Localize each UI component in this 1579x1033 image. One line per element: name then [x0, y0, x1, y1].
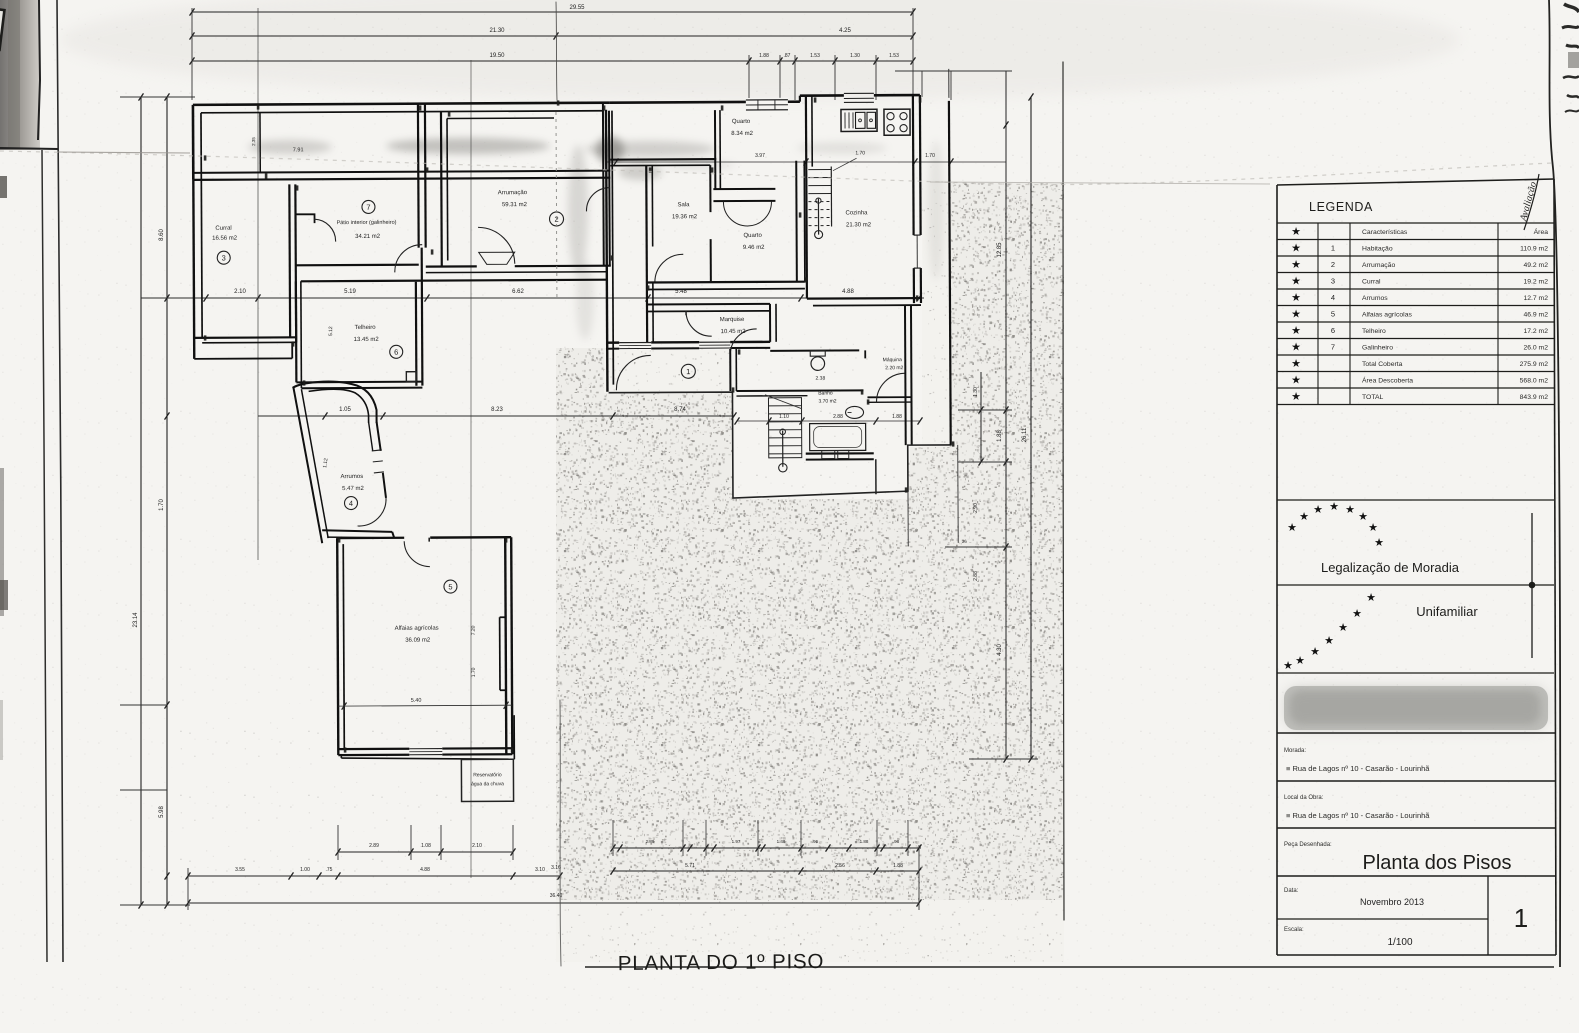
svg-text:Reservatório: Reservatório — [473, 772, 502, 778]
svg-text:≡ Rua de Lagos nº 10 - Cas: ≡ Rua de Lagos nº 10 - Casarão - Lourinh… — [1286, 811, 1430, 820]
svg-text:Área Descoberta: Área Descoberta — [1362, 375, 1413, 384]
svg-text:21.30 m2: 21.30 m2 — [846, 222, 872, 228]
svg-text:★: ★ — [1287, 522, 1297, 534]
svg-text:275.9 m2: 275.9 m2 — [1520, 361, 1549, 368]
svg-text:1.30: 1.30 — [850, 53, 860, 59]
svg-text:7: 7 — [1331, 342, 1335, 351]
svg-text:568.0 m2: 568.0 m2 — [1520, 377, 1549, 384]
svg-text:Telheiro: Telheiro — [355, 325, 377, 331]
svg-text:1: 1 — [686, 367, 690, 376]
svg-text:49.2 m2: 49.2 m2 — [1523, 262, 1548, 269]
svg-text:21.30: 21.30 — [489, 28, 505, 34]
svg-text:PLANTA DO 1º PISO: PLANTA DO 1º PISO — [618, 950, 825, 975]
svg-text:17.2 m2: 17.2 m2 — [1523, 328, 1548, 335]
svg-text:1.70: 1.70 — [471, 667, 477, 677]
svg-text:3: 3 — [1331, 276, 1335, 285]
svg-text:água da chuva: água da chuva — [471, 781, 504, 787]
svg-text:Curral: Curral — [1362, 278, 1381, 285]
svg-text:4.25: 4.25 — [839, 28, 851, 34]
svg-text:1: 1 — [1331, 243, 1335, 252]
svg-text:5.47 m2: 5.47 m2 — [342, 486, 364, 492]
svg-text:1.53: 1.53 — [889, 53, 899, 59]
svg-text:4: 4 — [1331, 293, 1335, 302]
svg-text:3: 3 — [222, 253, 226, 262]
svg-text:2.88: 2.88 — [833, 414, 843, 420]
svg-text:7.91: 7.91 — [293, 147, 304, 153]
svg-text:843.9 m2: 843.9 m2 — [1520, 394, 1549, 401]
svg-text:1.88: 1.88 — [892, 414, 902, 420]
svg-text:1.10: 1.10 — [779, 414, 789, 420]
svg-text:2.10: 2.10 — [472, 843, 482, 849]
svg-text:7: 7 — [366, 203, 370, 212]
svg-text:1.97: 1.97 — [732, 839, 741, 844]
svg-text:LEGENDA: LEGENDA — [1309, 200, 1373, 214]
svg-text:3.70 m2: 3.70 m2 — [818, 398, 836, 404]
svg-text:19.50: 19.50 — [489, 53, 505, 59]
svg-text:1.00: 1.00 — [300, 867, 310, 873]
svg-text:★: ★ — [1366, 592, 1376, 604]
svg-text:Sala: Sala — [677, 202, 690, 208]
svg-text:TOTAL: TOTAL — [1362, 394, 1383, 401]
svg-text:★: ★ — [1291, 242, 1301, 254]
svg-text:★: ★ — [1283, 660, 1293, 672]
svg-text:26.0 m2: 26.0 m2 — [1523, 344, 1548, 351]
svg-text:★: ★ — [1368, 522, 1378, 534]
svg-text:Arrumação: Arrumação — [498, 190, 528, 196]
svg-text:2.90: 2.90 — [973, 503, 979, 513]
svg-text:1.70: 1.70 — [925, 153, 935, 159]
svg-text:3.10: 3.10 — [535, 867, 545, 873]
svg-text:Banho: Banho — [818, 391, 833, 397]
svg-text:★: ★ — [1291, 358, 1301, 370]
svg-text:2.88: 2.88 — [973, 571, 979, 581]
svg-text:Telheiro: Telheiro — [1362, 328, 1386, 335]
svg-text:★: ★ — [1291, 341, 1301, 353]
svg-text:.98: .98 — [893, 839, 900, 844]
svg-text:5: 5 — [448, 582, 452, 591]
svg-text:16.56 m2: 16.56 m2 — [212, 236, 238, 242]
svg-text:36.09 m2: 36.09 m2 — [405, 638, 431, 644]
svg-text:6: 6 — [394, 348, 398, 357]
svg-text:59.31 m2: 59.31 m2 — [502, 202, 528, 208]
svg-text:6: 6 — [1331, 326, 1335, 335]
svg-text:Legalização de Moradia: Legalização de Moradia — [1321, 560, 1460, 575]
svg-text:1.48: 1.48 — [777, 839, 786, 844]
svg-text:Quarto: Quarto — [743, 233, 762, 239]
svg-text:36: 36 — [962, 539, 968, 544]
svg-text:34.21 m2: 34.21 m2 — [355, 234, 381, 240]
svg-text:1.30: 1.30 — [973, 387, 979, 397]
svg-text:★: ★ — [1338, 622, 1348, 634]
svg-text:★: ★ — [1299, 511, 1309, 523]
svg-text:★: ★ — [1345, 504, 1355, 516]
svg-text:1.70: 1.70 — [855, 150, 865, 156]
svg-text:4.30: 4.30 — [997, 644, 1003, 656]
svg-text:★: ★ — [1291, 259, 1301, 271]
svg-text:2.89: 2.89 — [369, 843, 379, 849]
svg-text:Unifamiliar: Unifamiliar — [1416, 604, 1478, 619]
svg-text:2.10: 2.10 — [234, 289, 246, 295]
svg-text:Escala:: Escala: — [1284, 927, 1304, 933]
svg-text:Área: Área — [1534, 227, 1549, 236]
svg-text:★: ★ — [1313, 504, 1323, 516]
svg-text:Alfaias agrícolas: Alfaias agrícolas — [1362, 311, 1412, 318]
svg-text:★: ★ — [1358, 511, 1368, 523]
svg-text:2: 2 — [1331, 260, 1335, 269]
svg-text:4.88: 4.88 — [842, 289, 854, 295]
svg-text:1.88: 1.88 — [759, 53, 769, 59]
svg-text:5.71: 5.71 — [685, 863, 695, 869]
svg-text:★: ★ — [1291, 374, 1301, 386]
svg-text:7.20: 7.20 — [471, 625, 477, 635]
svg-text:2.20 m2: 2.20 m2 — [885, 365, 903, 371]
svg-text:19.36 m2: 19.36 m2 — [672, 214, 698, 220]
svg-text:Habitação: Habitação — [1362, 245, 1393, 252]
svg-text:2.35: 2.35 — [251, 137, 256, 146]
svg-text:1: 1 — [1514, 903, 1528, 933]
svg-text:13.45 m2: 13.45 m2 — [354, 337, 380, 343]
svg-text:★: ★ — [1291, 308, 1301, 320]
svg-text:≡ Rua de Lagos nº 10 - Cas: ≡ Rua de Lagos nº 10 - Casarão - Lourinh… — [1286, 764, 1430, 773]
svg-text:46.9 m2: 46.9 m2 — [1523, 311, 1548, 318]
svg-text:Galinheiro: Galinheiro — [1362, 344, 1393, 351]
svg-text:2.56: 2.56 — [835, 863, 845, 869]
svg-text:1.08: 1.08 — [421, 843, 431, 849]
svg-text:★: ★ — [1291, 391, 1301, 403]
svg-text:3.97: 3.97 — [755, 153, 765, 159]
svg-text:Morada:: Morada: — [1284, 748, 1306, 754]
svg-text:★: ★ — [1329, 501, 1339, 513]
svg-text:★: ★ — [1291, 226, 1301, 238]
svg-text:Novembro 2013: Novembro 2013 — [1360, 897, 1424, 907]
svg-text:1/100: 1/100 — [1387, 937, 1412, 948]
svg-text:Planta dos Pisos: Planta dos Pisos — [1363, 852, 1512, 874]
svg-text:4.88: 4.88 — [420, 867, 430, 873]
svg-text:Pátio interior (galinheiro): Pátio interior (galinheiro) — [337, 220, 397, 226]
svg-text:Arrumos: Arrumos — [1362, 295, 1388, 302]
svg-text:5.19: 5.19 — [344, 289, 356, 295]
svg-text:110.9 m2: 110.9 m2 — [1520, 245, 1548, 252]
svg-text:.87: .87 — [784, 53, 791, 59]
svg-text:8.23: 8.23 — [491, 407, 503, 413]
svg-text:★: ★ — [1291, 292, 1301, 304]
svg-text:29.55: 29.55 — [569, 5, 585, 11]
svg-text:2.38: 2.38 — [815, 376, 825, 382]
svg-text:1.05: 1.05 — [339, 407, 351, 413]
svg-text:Peça Desenhada:: Peça Desenhada: — [1284, 842, 1332, 848]
svg-text:26.11: 26.11 — [1022, 427, 1028, 442]
svg-text:10.45 m2: 10.45 m2 — [721, 329, 747, 335]
svg-text:★: ★ — [1374, 537, 1384, 549]
svg-text:12.7 m2: 12.7 m2 — [1523, 295, 1548, 302]
svg-text:3.16: 3.16 — [551, 865, 561, 871]
svg-text:Arrumos: Arrumos — [341, 474, 364, 480]
svg-text:8.34 m2: 8.34 m2 — [731, 131, 753, 137]
svg-text:5.12: 5.12 — [328, 326, 334, 336]
svg-text:Total Coberta: Total Coberta — [1362, 361, 1403, 368]
svg-text:.75: .75 — [326, 867, 333, 873]
svg-text:8.60: 8.60 — [159, 229, 165, 241]
svg-text:Cozinha: Cozinha — [845, 210, 868, 216]
svg-text:Marquise: Marquise — [720, 317, 745, 323]
svg-text:4: 4 — [349, 499, 353, 508]
svg-text:1.88: 1.88 — [893, 863, 903, 869]
svg-text:Quarto: Quarto — [732, 119, 751, 125]
svg-text:Local da Obra:: Local da Obra: — [1284, 795, 1324, 801]
svg-text:8.74: 8.74 — [674, 407, 686, 413]
svg-text:12.85: 12.85 — [997, 242, 1003, 258]
svg-text:5.40: 5.40 — [411, 698, 422, 704]
svg-text:Arrumação: Arrumação — [1362, 262, 1395, 269]
svg-text:★: ★ — [1310, 646, 1320, 658]
svg-text:1.88: 1.88 — [860, 839, 869, 844]
svg-text:1.70: 1.70 — [159, 499, 165, 511]
svg-text:1.53: 1.53 — [810, 53, 820, 59]
svg-text:5.98: 5.98 — [159, 806, 165, 818]
svg-text:★: ★ — [1291, 325, 1301, 337]
svg-text:Curral: Curral — [215, 226, 231, 232]
svg-text:23.14: 23.14 — [133, 612, 139, 628]
svg-text:Data:: Data: — [1284, 888, 1299, 894]
svg-text:5: 5 — [1331, 309, 1335, 318]
svg-text:Máquina: Máquina — [883, 357, 902, 363]
svg-text:★: ★ — [1324, 635, 1334, 647]
svg-text:2.89: 2.89 — [646, 839, 655, 844]
svg-text:.96: .96 — [812, 839, 819, 844]
svg-text:Características: Características — [1362, 229, 1408, 236]
svg-text:★: ★ — [1291, 275, 1301, 287]
svg-text:Alfaias agrícolas: Alfaias agrícolas — [395, 626, 439, 632]
svg-text:6.62: 6.62 — [512, 289, 524, 295]
svg-text:9.46 m2: 9.46 m2 — [743, 245, 765, 251]
svg-text:★: ★ — [1295, 655, 1305, 667]
svg-text:★: ★ — [1352, 608, 1362, 620]
svg-text:1.88: 1.88 — [997, 430, 1003, 442]
svg-text:3.55: 3.55 — [235, 867, 245, 873]
svg-text:19.2 m2: 19.2 m2 — [1523, 278, 1548, 285]
